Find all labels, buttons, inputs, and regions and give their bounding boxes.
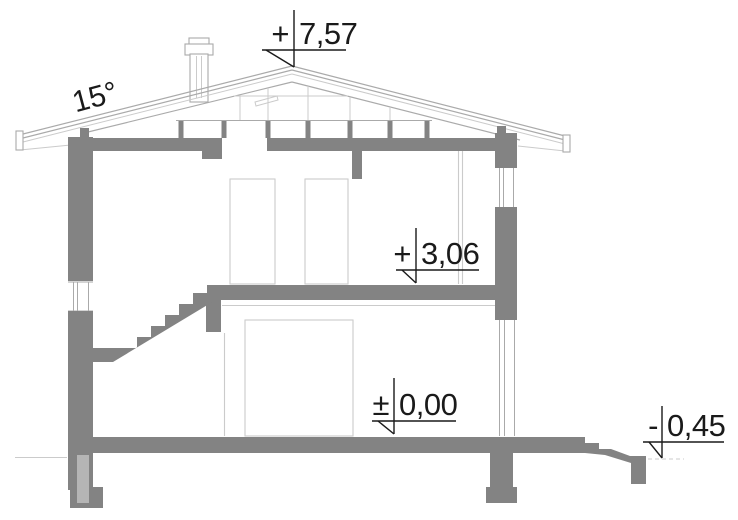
door-outline bbox=[305, 179, 348, 284]
left-wall-upper bbox=[68, 137, 93, 281]
chimney-cap bbox=[185, 44, 213, 55]
roof-left-top-line bbox=[23, 66, 292, 134]
ground-floor-glazing bbox=[500, 320, 515, 436]
upper-window bbox=[500, 168, 514, 207]
roof-post bbox=[388, 121, 393, 138]
roof-post bbox=[348, 121, 353, 138]
right-footing bbox=[486, 487, 517, 503]
roof-left-inner-line bbox=[23, 74, 292, 142]
floor-slab bbox=[207, 285, 517, 300]
interior-partition bbox=[352, 151, 362, 179]
door-outline bbox=[230, 179, 275, 284]
roof-post bbox=[222, 121, 227, 138]
level-marker-upper-floor: + 3,06 bbox=[393, 228, 479, 283]
level-value: 0,45 bbox=[667, 408, 725, 443]
level-sign: + bbox=[393, 236, 411, 271]
ground-slab bbox=[15, 437, 684, 484]
level-marker-ground-floor: ± 0,00 bbox=[372, 378, 458, 434]
ceiling-band-edge-beam bbox=[202, 138, 222, 159]
roof-left-second-line bbox=[23, 70, 292, 138]
right-wall-middle bbox=[495, 207, 517, 320]
upper-floor-slab bbox=[206, 285, 517, 332]
stair-flight bbox=[90, 285, 214, 362]
ground-floor-slab bbox=[73, 437, 585, 453]
roof-post bbox=[425, 121, 430, 138]
section-drawing: 15° + 7,57 + 3,06 ± 0,00 - 0,45 bbox=[0, 0, 738, 520]
ceiling-band-left bbox=[91, 138, 210, 151]
level-sign: ± bbox=[372, 387, 389, 422]
right-wall-head bbox=[495, 133, 517, 168]
level-value: 3,06 bbox=[421, 236, 479, 271]
ceiling-band-right bbox=[267, 138, 496, 151]
attic-ceiling-slab bbox=[91, 121, 496, 159]
level-marker-ridge: + 7,57 bbox=[262, 10, 357, 67]
opening-outline bbox=[245, 320, 353, 436]
house-section-canvas: 15° + 7,57 + 3,06 ± 0,00 - 0,45 bbox=[0, 0, 738, 520]
fascia-right bbox=[563, 135, 570, 152]
slab-edge-bulkhead bbox=[206, 300, 221, 332]
terrace-slab bbox=[585, 443, 646, 484]
stair-window bbox=[68, 282, 93, 311]
level-marker-exterior-grade: - 0,45 bbox=[643, 406, 725, 458]
roof-post bbox=[266, 121, 271, 138]
level-sign: - bbox=[648, 408, 658, 443]
roof-right-soffit bbox=[518, 146, 565, 151]
stairs bbox=[90, 285, 214, 362]
level-value: 7,57 bbox=[299, 16, 357, 51]
fascia-left bbox=[16, 131, 23, 150]
level-sign: + bbox=[271, 16, 289, 51]
left-wall-lower bbox=[68, 311, 93, 437]
left-foundation-insulation bbox=[77, 455, 89, 503]
level-value: 0,00 bbox=[399, 387, 458, 422]
left-wall-top-post bbox=[80, 128, 89, 138]
roof-right-rafter-underside bbox=[292, 82, 520, 140]
roof-post bbox=[179, 121, 184, 138]
roof-angle-label: 15° bbox=[69, 76, 121, 120]
roof-post bbox=[306, 121, 311, 138]
roof-vent bbox=[255, 96, 278, 106]
